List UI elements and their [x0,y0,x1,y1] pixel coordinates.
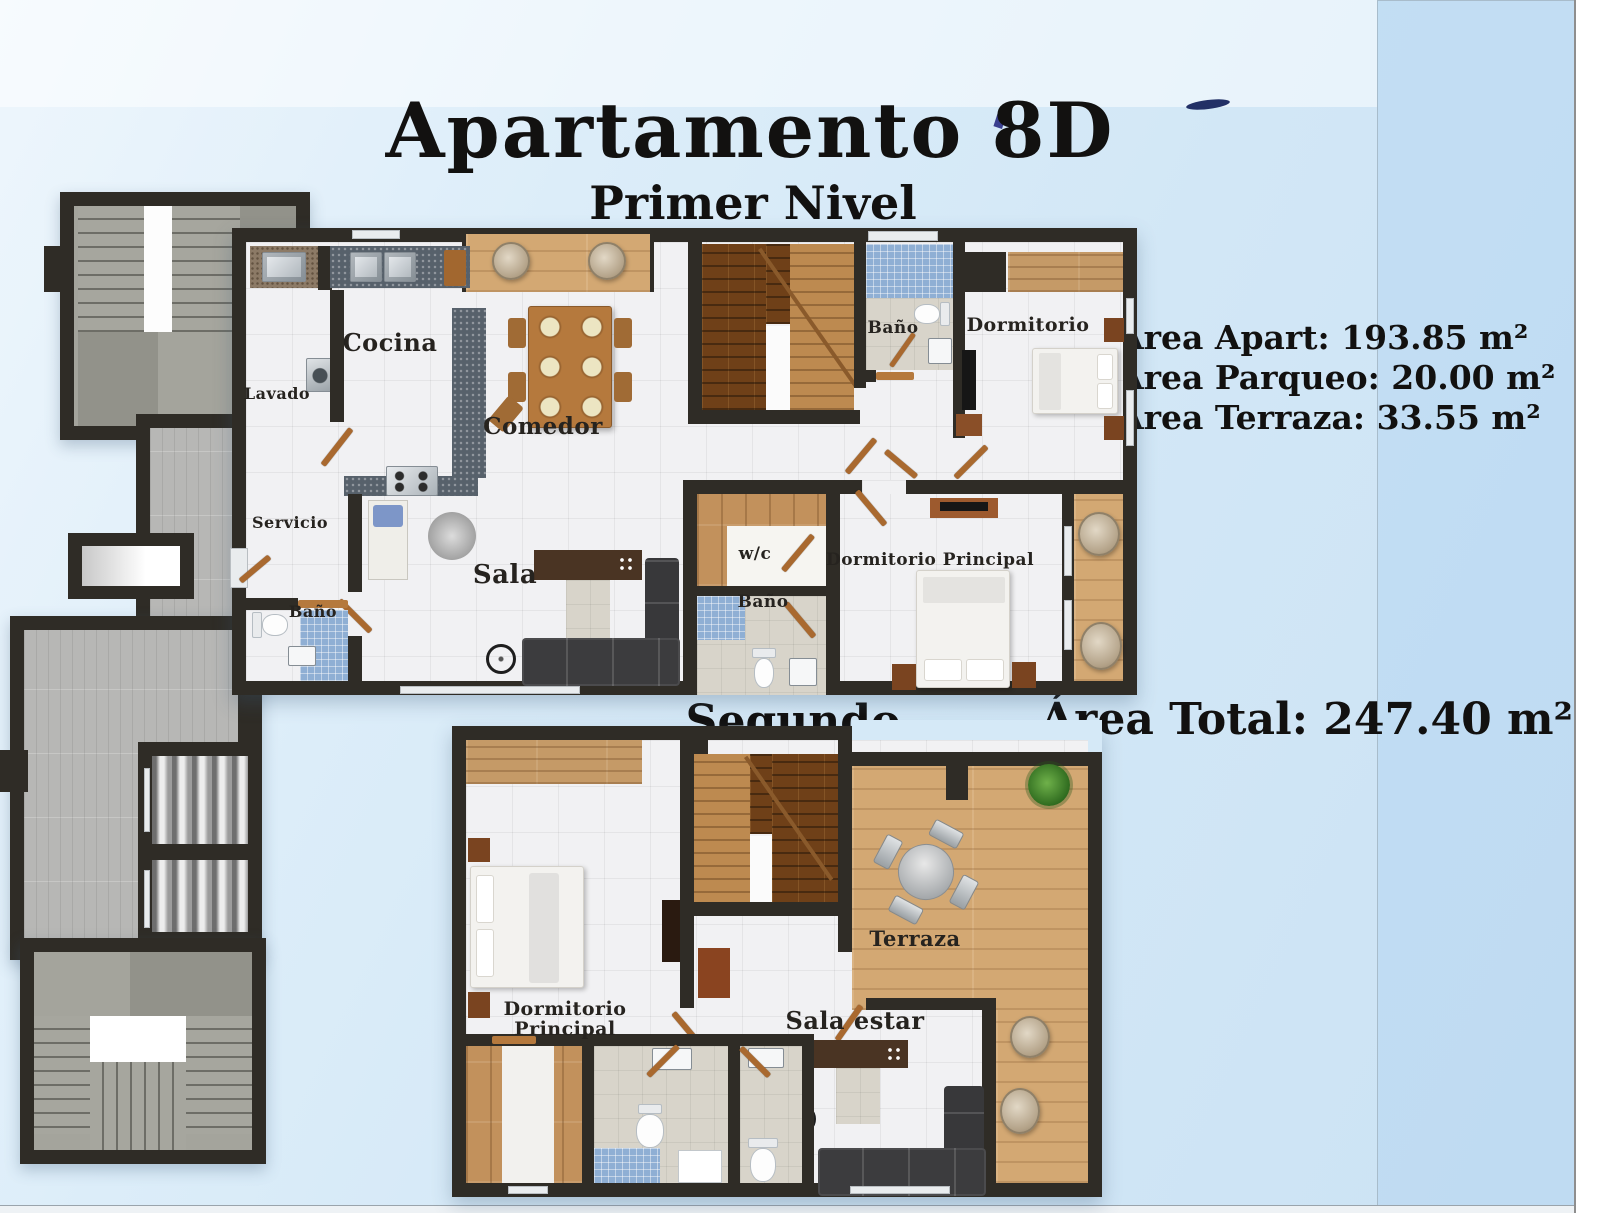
toilet-icon [636,1114,664,1148]
cutting-board-icon [444,250,466,286]
room-label-bano-top: Baño [848,320,938,338]
balcony-chair-icon [588,242,626,280]
floorplan-canvas: Apartamento 8D Primer Nivel Área Apart: … [0,0,1600,1213]
wing-left-wall [683,480,697,695]
cushion-icon [373,505,403,527]
wall-stub [44,246,62,292]
toilet-tank-icon [752,648,776,658]
dining-chair-icon [614,372,632,402]
room-label-bano-principal: Baño [718,594,808,612]
wall-segment [348,494,362,592]
stairs-flight-icon [34,1016,90,1134]
area-total: Área Total: 247.40 m² [1040,694,1573,745]
door-leaf [876,372,914,380]
page-title: Apartamento 8D [380,86,1120,175]
elevator-1-icon [152,756,248,844]
tv-console-icon [698,948,730,998]
tv-icon [940,502,988,511]
room-label-wc: w/c [710,546,800,564]
sofa-icon [522,638,680,686]
window [1064,600,1072,650]
balcony-wall [1062,494,1074,695]
pillow-icon [476,875,494,923]
bidet-icon [789,658,817,686]
stair-wall [688,242,702,414]
stairs-flight-icon [186,1016,252,1134]
sink-icon [928,338,952,364]
toilet-tank-icon [748,1138,778,1148]
stair-landing [130,952,252,1016]
stove-icon [386,466,438,496]
window [1064,526,1072,576]
nightstand-icon [1012,662,1036,688]
bed-icon [916,570,1010,688]
bar-stools-icon [618,556,636,574]
nightstand-icon [892,664,916,690]
nightstand-icon [468,838,490,862]
wall-segment [582,1034,594,1197]
pillow-icon [476,929,494,977]
toilet-icon [750,1148,776,1182]
stairwell-gap [144,206,172,332]
stairs-flight-icon [702,244,766,410]
bed-icon [470,866,584,988]
toilet-tank-icon [252,612,262,638]
background-right-margin [1574,0,1600,1213]
wall-segment [348,636,362,681]
window [850,1186,950,1194]
area-parqueo: Área Parqueo: 20.00 m² [1118,358,1556,397]
balcony-chair-icon [1080,622,1122,670]
bar-counter-icon [806,1040,908,1068]
room-label-lavado: Lavado [222,386,332,403]
toilet-tank-icon [638,1104,662,1114]
stair-gap [750,836,772,906]
stair-gap [766,326,790,410]
terrace-lounge-chair-icon [1000,1088,1040,1134]
room-label-dormitorio-principal-1: Dormitorio Principal [820,552,1040,570]
level1-heading: Primer Nivel [553,176,953,230]
pillow-icon [1097,383,1113,409]
round-rug-icon [428,512,476,560]
bath-wall [854,370,876,382]
pillow-icon [966,659,1004,681]
pillow-icon [1097,354,1113,380]
floor-lamp-icon [486,644,516,674]
stairs-flight-icon [694,754,750,906]
stairs-flight-icon [90,1062,186,1150]
wall-stub [946,752,968,800]
bar-pedestal [836,1068,880,1124]
wall-segment [728,1034,740,1197]
room-label-bano-servicio: Baño [268,604,358,621]
balcony-chair-icon [1078,512,1120,556]
shower-floor [594,1148,660,1183]
elevator-door [144,870,150,928]
elevator-2-icon [152,860,248,932]
window [508,1186,548,1194]
stair-wall [680,902,852,916]
area-terraza: Área Terraza: 33.55 m² [1118,398,1541,437]
blanket-fold [923,577,1005,603]
bench-icon [368,500,408,580]
stairs-flight-icon [78,206,144,332]
nightstand-icon [1104,416,1124,440]
toilet-icon [754,658,774,688]
shared-bath-floor [866,244,953,298]
room-label-cocina: Cocina [320,330,460,355]
kitchen-sink-icon [350,252,382,282]
kitchen-sink-icon [384,252,416,282]
dining-table-icon [528,306,612,428]
window [352,230,400,239]
bed-icon [1032,348,1118,414]
stairs-flight-icon [772,754,838,906]
wall-segment [680,740,694,1008]
background-bottom-strip [0,1205,1574,1213]
stair-wall [838,740,852,916]
closet-runner [502,1046,554,1183]
window [1126,390,1134,446]
room-label-dormitorio-principal-2: Dormitorio Principal [455,1000,675,1040]
stair-wall [694,740,708,754]
entry-door-opening [230,548,248,588]
door-opening [862,480,906,494]
balcony-chair-icon [492,242,530,280]
closet-icon [1008,252,1123,292]
wall-segment [826,494,840,695]
room-label-sala-estar: Sala estar [765,1008,945,1033]
stair-landing-white [90,1016,186,1062]
wing-top-wall [688,480,1137,494]
closet-icon [466,740,642,784]
area-apart: Área Apart: 193.85 m² [1118,318,1528,357]
blanket-fold [1039,353,1061,410]
bar-stools-icon [886,1046,902,1062]
tv-icon [662,900,680,962]
room-label-servicio: Servicio [230,515,350,532]
elevator-door [144,768,150,832]
sink-icon [288,646,316,666]
wall-segment [802,1034,814,1197]
rug-icon [956,414,982,436]
lobby-niche-floor [82,546,180,586]
plant-icon [1028,764,1070,806]
wall-segment [330,290,344,422]
stairs-flight-icon [790,244,854,410]
bath-wall [854,242,866,388]
tv-console-icon [962,350,976,410]
dining-chair-icon [614,318,632,348]
stairs-flight-icon [172,206,240,332]
closet-block [958,252,1006,292]
shower-tray [678,1150,722,1183]
background-right-panel [1377,0,1574,1213]
dining-chair-icon [508,318,526,348]
pillow-icon [924,659,962,681]
room-label-dormitorio: Dormitorio [948,316,1108,336]
stair-wall [688,410,860,424]
window [1126,298,1134,334]
kitchen-sink-icon [262,252,306,282]
room-label-comedor: Comedor [463,415,623,439]
window [400,686,580,694]
blanket-fold [529,873,559,983]
window [868,231,938,241]
terrace-lounge-chair-icon [1010,1016,1050,1058]
room-label-terraza: Terraza [850,928,980,950]
terrace-top-wall [838,752,1102,766]
room-label-sala: Sala [430,562,580,589]
wall-stub [0,750,28,792]
stair-landing [78,332,158,426]
